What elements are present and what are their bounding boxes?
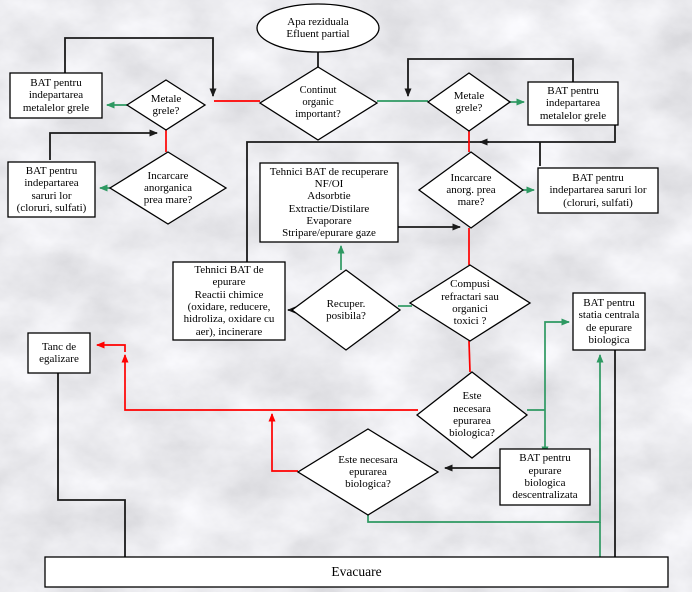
start-ellipse bbox=[257, 4, 379, 52]
flowchart-shapes-and-connectors bbox=[0, 0, 692, 592]
diamond-compusi-refractari bbox=[410, 265, 530, 341]
box-tanc-egalizare bbox=[28, 333, 90, 373]
diamond-incarcare-right bbox=[419, 152, 523, 228]
diamond-metale-grele-right bbox=[428, 73, 510, 131]
diamond-metale-grele-left bbox=[127, 80, 205, 130]
box-bat-metale-right bbox=[528, 82, 618, 125]
box-bat-descentralizata bbox=[500, 449, 590, 505]
diamond-incarcare-left bbox=[110, 152, 226, 224]
diamond-este-necesara-2 bbox=[298, 429, 438, 515]
diamond-continut-organic bbox=[260, 67, 377, 140]
box-tehnici-recuperare bbox=[260, 163, 398, 242]
flowchart-canvas: Apa reziduala Efluent partial Continut o… bbox=[0, 0, 692, 592]
diamond-recuper-posibila bbox=[292, 270, 400, 350]
box-tehnici-epurare bbox=[173, 262, 285, 340]
box-bat-saruri-left bbox=[8, 162, 95, 217]
box-evacuare bbox=[45, 557, 668, 587]
box-bat-saruri-right bbox=[538, 168, 658, 213]
box-bat-metale-left bbox=[10, 73, 102, 118]
box-bat-statia-centrala bbox=[573, 293, 645, 350]
diamond-este-necesara-1 bbox=[417, 372, 527, 458]
